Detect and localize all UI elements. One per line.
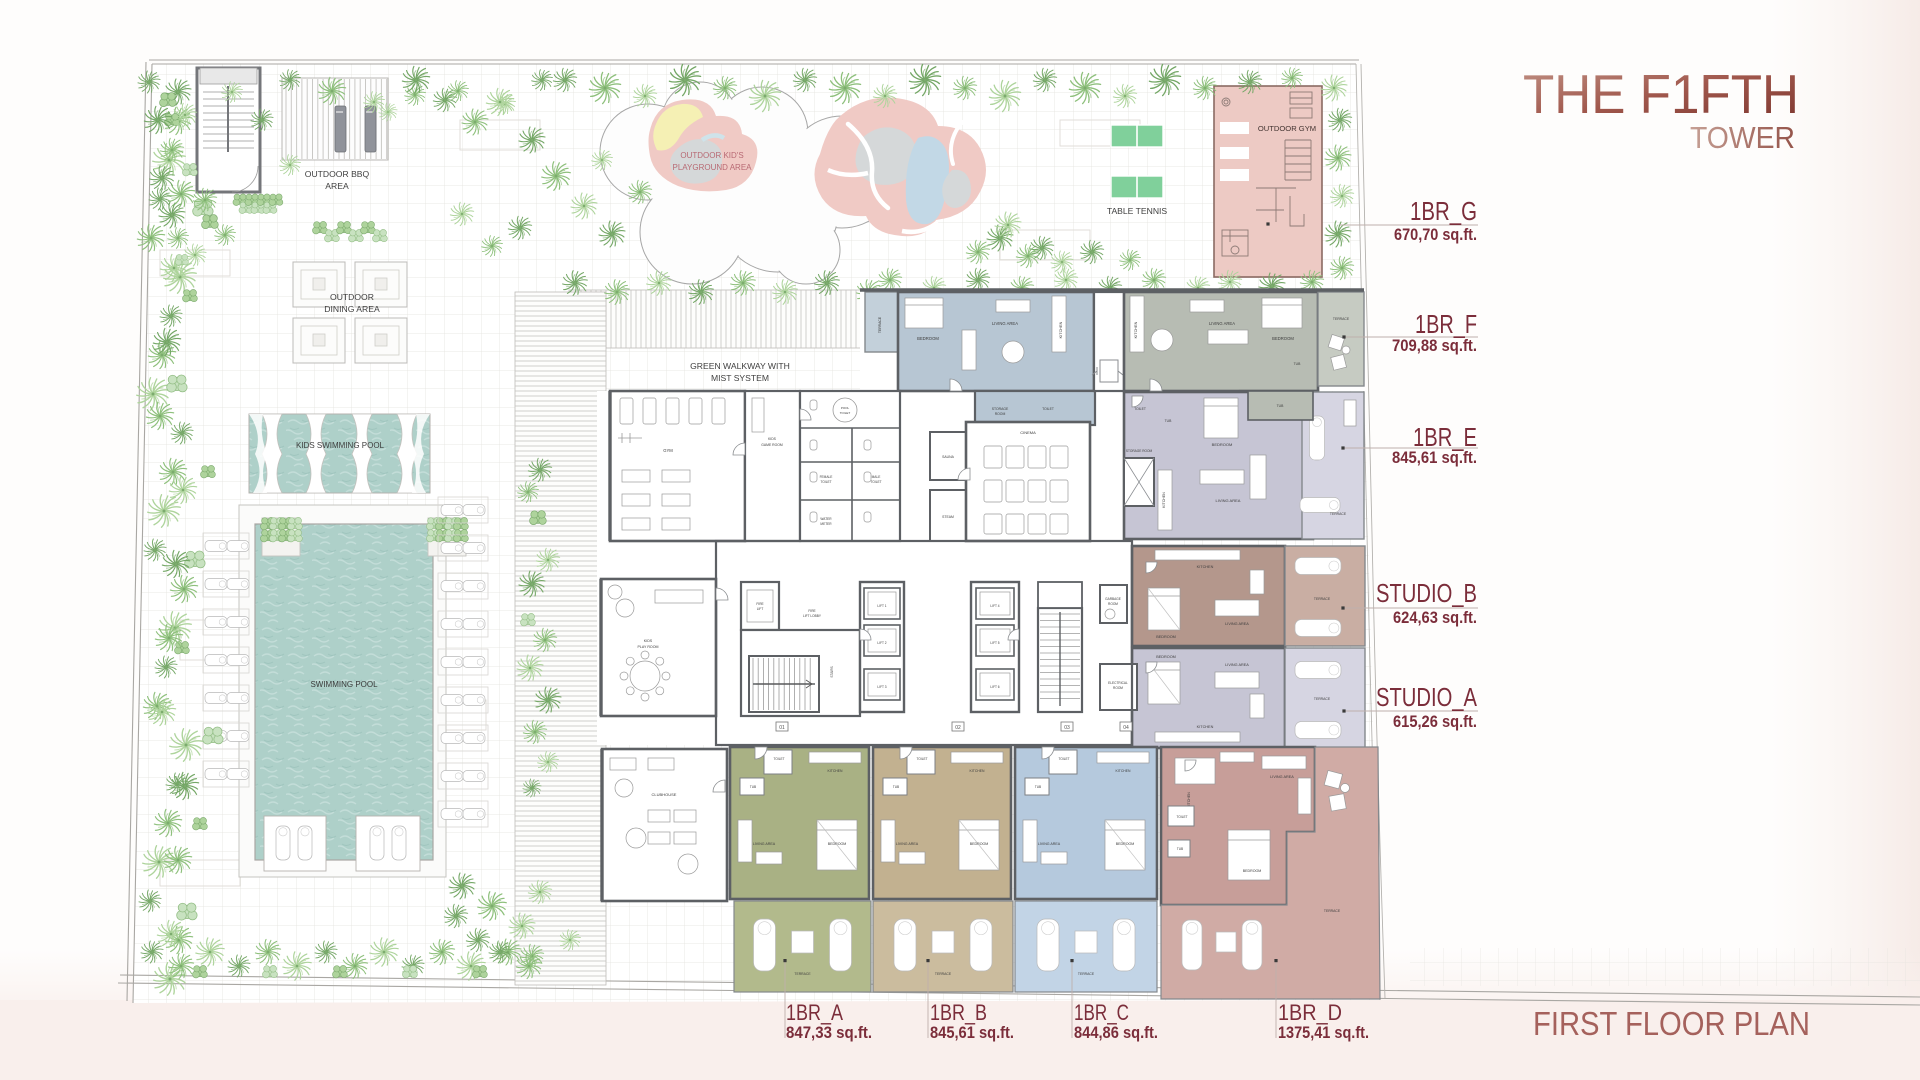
svg-text:LIVING AREA: LIVING AREA [1038, 842, 1061, 846]
svg-text:TERRACE: TERRACE [1324, 909, 1341, 913]
svg-text:1BR_C: 1BR_C [1074, 1000, 1129, 1025]
svg-text:FIRE: FIRE [756, 602, 763, 606]
svg-text:MIST SYSTEM: MIST SYSTEM [711, 373, 769, 383]
svg-text:GREEN WALKWAY WITH: GREEN WALKWAY WITH [690, 361, 790, 371]
svg-text:OUTDOOR KID'S: OUTDOOR KID'S [680, 151, 743, 160]
svg-text:POOL: POOL [841, 406, 850, 410]
svg-text:MALE: MALE [872, 475, 881, 479]
svg-text:BEDROOM: BEDROOM [828, 842, 847, 846]
svg-text:KITCHEN: KITCHEN [1162, 492, 1166, 508]
svg-text:ROOM: ROOM [995, 412, 1006, 416]
svg-text:FEMALE: FEMALE [820, 475, 833, 479]
svg-text:STUDIO_A: STUDIO_A [1376, 682, 1478, 712]
svg-text:847,33 sq.ft.: 847,33 sq.ft. [786, 1023, 872, 1042]
svg-text:CLUBHOUSE: CLUBHOUSE [652, 792, 677, 797]
svg-text:OUTDOOR GYM: OUTDOOR GYM [1258, 124, 1316, 133]
svg-text:FIRE: FIRE [808, 609, 815, 613]
svg-text:TERRACE: TERRACE [935, 972, 952, 976]
svg-text:03: 03 [1064, 725, 1070, 731]
svg-text:CINEMA: CINEMA [1020, 430, 1036, 435]
svg-text:TERRACE: TERRACE [1314, 697, 1331, 701]
svg-text:AREA: AREA [325, 181, 349, 191]
svg-text:845,61 sq.ft.: 845,61 sq.ft. [930, 1023, 1014, 1042]
svg-text:1BR_G: 1BR_G [1410, 196, 1477, 226]
svg-text:BEDROOM: BEDROOM [917, 336, 939, 341]
svg-text:BEDROOM: BEDROOM [1116, 842, 1135, 846]
svg-text:01: 01 [779, 725, 785, 731]
svg-text:STORAGE ROOM: STORAGE ROOM [1126, 449, 1153, 453]
svg-text:KITCHEN: KITCHEN [1197, 725, 1214, 729]
svg-text:KITCHEN: KITCHEN [1134, 321, 1138, 338]
svg-text:TUB: TUB [1165, 419, 1173, 423]
svg-text:KIDS: KIDS [644, 639, 653, 643]
svg-text:TOILET: TOILET [1058, 757, 1069, 761]
svg-text:02: 02 [955, 725, 961, 731]
svg-text:BEDROOM: BEDROOM [1156, 635, 1176, 639]
svg-text:TABLE TENNIS: TABLE TENNIS [1107, 206, 1168, 216]
svg-text:TOILET: TOILET [916, 757, 927, 761]
svg-text:ROOM: ROOM [1113, 686, 1123, 690]
svg-text:KITCHEN: KITCHEN [828, 769, 843, 773]
svg-text:PLAYGROUND AREA: PLAYGROUND AREA [673, 163, 753, 172]
svg-text:1BR_F: 1BR_F [1415, 309, 1477, 339]
svg-text:615,26 sq.ft.: 615,26 sq.ft. [1393, 712, 1477, 731]
svg-text:TUB: TUB [750, 785, 756, 789]
svg-text:GAME ROOM: GAME ROOM [761, 443, 783, 447]
svg-text:LIFT LOBBY: LIFT LOBBY [803, 614, 822, 618]
svg-text:LIFT: LIFT [757, 607, 764, 611]
svg-text:BEDROOM: BEDROOM [1212, 442, 1233, 447]
svg-text:845,61 sq.ft.: 845,61 sq.ft. [1392, 448, 1477, 467]
svg-text:TOWER: TOWER [1690, 120, 1795, 155]
svg-text:TERRACE: TERRACE [1078, 972, 1095, 976]
svg-text:LIVING AREA: LIVING AREA [1225, 663, 1249, 667]
svg-text:TUB: TUB [1277, 404, 1285, 408]
svg-text:PLAY ROOM: PLAY ROOM [637, 645, 658, 649]
svg-text:SWIMMING POOL: SWIMMING POOL [310, 680, 378, 689]
svg-text:ROOM: ROOM [1108, 602, 1118, 606]
svg-text:BEDROOM: BEDROOM [970, 842, 989, 846]
svg-text:STUDIO_B: STUDIO_B [1376, 578, 1477, 608]
svg-text:TERRACE: TERRACE [1333, 317, 1350, 321]
svg-text:LIFT 1: LIFT 1 [877, 604, 886, 608]
svg-text:844,86 sq.ft.: 844,86 sq.ft. [1074, 1023, 1158, 1042]
svg-text:KITCHEN: KITCHEN [1059, 321, 1063, 338]
svg-text:LIVING AREA: LIVING AREA [1225, 622, 1249, 626]
svg-text:TOILET: TOILET [773, 757, 784, 761]
svg-text:STAIRS: STAIRS [830, 666, 834, 677]
svg-text:STEAM: STEAM [942, 515, 954, 519]
svg-text:LIVING AREA: LIVING AREA [992, 321, 1018, 326]
svg-text:TUB: TUB [1294, 362, 1302, 366]
svg-text:1BR_A: 1BR_A [786, 1000, 843, 1025]
svg-text:TUB: TUB [1035, 785, 1041, 789]
svg-text:LIFT 2: LIFT 2 [877, 641, 886, 645]
svg-text:KITCHEN: KITCHEN [1116, 769, 1131, 773]
svg-text:LIFT 3: LIFT 3 [877, 685, 886, 689]
svg-text:WATER: WATER [820, 517, 832, 521]
svg-text:670,70 sq.ft.: 670,70 sq.ft. [1394, 225, 1477, 244]
svg-text:GYM: GYM [663, 448, 673, 453]
svg-text:TUB: TUB [1177, 847, 1183, 851]
svg-text:LIFT 5: LIFT 5 [990, 641, 999, 645]
svg-text:04: 04 [1123, 725, 1129, 731]
svg-text:LIFT 4: LIFT 4 [990, 604, 999, 608]
svg-text:LIVING AREA: LIVING AREA [1270, 775, 1294, 779]
svg-text:ELECTRICAL: ELECTRICAL [1108, 681, 1128, 685]
svg-text:BEDROOM: BEDROOM [1243, 869, 1262, 873]
svg-text:1BR_D: 1BR_D [1278, 1000, 1342, 1025]
svg-text:KIDS: KIDS [768, 437, 777, 441]
svg-text:LIVING AREA: LIVING AREA [1209, 321, 1235, 326]
svg-text:KITCHEN: KITCHEN [970, 769, 985, 773]
svg-text:DINING AREA: DINING AREA [324, 304, 380, 314]
svg-text:KIDS SWIMMING POOL: KIDS SWIMMING POOL [296, 441, 385, 450]
svg-text:TOILET: TOILET [1042, 407, 1054, 411]
svg-text:LIVING AREA: LIVING AREA [753, 842, 776, 846]
svg-text:GARBAGE: GARBAGE [1105, 597, 1121, 601]
svg-text:STORAGE: STORAGE [992, 407, 1009, 411]
svg-text:TOILET: TOILET [1176, 815, 1187, 819]
svg-text:TOILET: TOILET [1134, 407, 1146, 411]
svg-text:KITCHEN: KITCHEN [1197, 565, 1214, 569]
svg-text:624,63 sq.ft.: 624,63 sq.ft. [1393, 608, 1477, 627]
svg-text:SAUNA: SAUNA [942, 455, 954, 459]
svg-text:LIFT 6: LIFT 6 [990, 685, 999, 689]
svg-text:FIRST FLOOR PLAN: FIRST FLOOR PLAN [1533, 1005, 1810, 1042]
svg-text:OUTDOOR: OUTDOOR [330, 292, 374, 302]
svg-text:TOILET: TOILET [820, 480, 831, 484]
svg-text:1375,41 sq.ft.: 1375,41 sq.ft. [1278, 1023, 1369, 1042]
svg-text:709,88 sq.ft.: 709,88 sq.ft. [1392, 336, 1477, 355]
svg-text:LIVING AREA: LIVING AREA [1216, 498, 1241, 503]
svg-text:TERRACE: TERRACE [878, 316, 882, 333]
svg-text:TOILET: TOILET [840, 411, 851, 415]
svg-text:LIVING AREA: LIVING AREA [896, 842, 919, 846]
svg-text:BEDROOM: BEDROOM [1156, 655, 1176, 659]
svg-text:BEDROOM: BEDROOM [1272, 336, 1294, 341]
svg-text:THE F1FTH: THE F1FTH [1523, 63, 1799, 125]
svg-text:TOILET: TOILET [870, 480, 881, 484]
svg-text:OUTDOOR BBQ: OUTDOOR BBQ [305, 169, 370, 179]
svg-text:TERRACE: TERRACE [1314, 597, 1331, 601]
svg-text:TUB: TUB [893, 785, 899, 789]
svg-text:METER: METER [820, 522, 832, 526]
svg-text:TERRACE: TERRACE [1330, 512, 1347, 516]
svg-text:1BR_B: 1BR_B [930, 1000, 987, 1025]
svg-text:TERRACE: TERRACE [794, 972, 811, 976]
svg-text:KITCHEN: KITCHEN [1187, 792, 1191, 808]
